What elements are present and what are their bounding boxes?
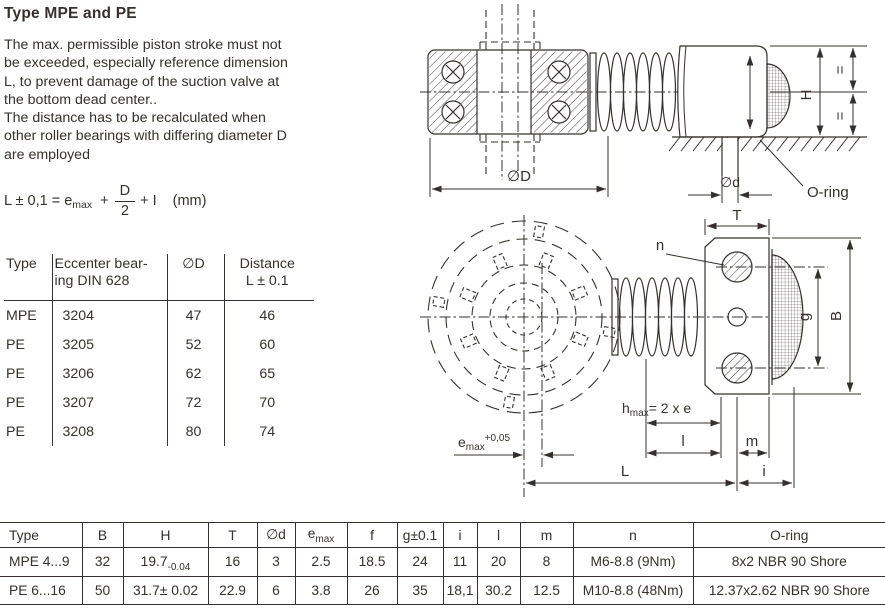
col-header-g: g±0.1 (397, 523, 443, 548)
cell-type: MPE 4...9 (0, 548, 82, 577)
cell-g: 35 (397, 576, 443, 605)
cell-f: 18.5 (347, 548, 397, 577)
cell-f: 26 (347, 576, 397, 605)
formula-unit: (mm) (173, 193, 207, 209)
table-row: PE 6...16 50 31.7± 0.02 22.9 6 3.8 26 35… (0, 576, 885, 605)
cell-l: 20 (477, 548, 520, 577)
cell-m: 8 (520, 548, 573, 577)
intro-line: L, to prevent damage of the suction valv… (4, 73, 288, 91)
dim-label-hmax: hmax= 2 x e (622, 400, 691, 419)
col-header-type: Type (4, 254, 52, 301)
dim-label-diaD: ∅D (507, 168, 531, 185)
cell-type: PE 6...16 (0, 576, 82, 605)
col-header-B: B (82, 523, 123, 548)
cell-n: M10-8.8 (48Nm) (573, 576, 693, 605)
ground-hatch (669, 137, 860, 151)
cell-type: PE (4, 359, 52, 388)
cell-diaD: 52 (167, 330, 224, 359)
cell-bearing: 3207 (52, 388, 167, 417)
cell-diaD: 80 (167, 417, 224, 446)
intro-line: other roller bearings with differing dia… (4, 127, 288, 145)
table-row: PE 3206 62 65 (4, 359, 314, 388)
col-header-i: i (443, 523, 477, 548)
dim-label-eq-bottom: = (832, 111, 849, 120)
upper-drawing: ∅D ∅d H = = O-ring (420, 0, 885, 210)
intro-line: The distance has to be recalculated when (4, 109, 288, 127)
lower-dimensions (454, 219, 861, 491)
formula-plus: + (100, 193, 108, 209)
cell-oring: 8x2 NBR 90 Shore (693, 548, 885, 577)
bolt-top (722, 252, 752, 282)
flange (705, 238, 803, 394)
intro-line: The max. permissible piston stroke must … (4, 36, 288, 54)
dim-label-n: n (656, 237, 664, 254)
col-header-emax: emax (295, 523, 347, 548)
stroke-formula: L ± 0,1 = emax + D 2 + I (mm) (4, 183, 206, 219)
formula-subscript: max (72, 199, 92, 211)
formula-suffix: + I (140, 193, 157, 209)
page-title: Type MPE and PE (4, 5, 137, 23)
formula-prefix: L ± 0,1 = e (4, 193, 72, 209)
dim-label-B: B (828, 311, 845, 321)
table-row: MPE 4...9 32 19.7-0.04 16 3 2.5 18.5 24 … (0, 548, 885, 577)
col-header-H: H (123, 523, 208, 548)
intro-line: are employed (4, 146, 288, 164)
cell-diad: 3 (257, 548, 295, 577)
col-header-m: m (520, 523, 573, 548)
cell-diaD: 72 (167, 388, 224, 417)
bearing-table-header-row: Type Eccenter bear-ing DIN 628 ∅D Distan… (4, 254, 314, 301)
cell-emax: 2.5 (295, 548, 347, 577)
cell-distance: 70 (224, 388, 314, 417)
page: Type MPE and PE The max. permissible pis… (0, 0, 885, 609)
cell-distance: 46 (224, 301, 314, 331)
col-header-n: n (573, 523, 693, 548)
table-row: PE 3207 72 70 (4, 388, 314, 417)
cell-i: 11 (443, 548, 477, 577)
intro-paragraph: The max. permissible piston stroke must … (4, 36, 288, 164)
bolt-bottom (722, 353, 752, 383)
col-header-T: T (208, 523, 257, 548)
formula-numerator: D (115, 183, 135, 202)
cell-bearing: 3205 (52, 330, 167, 359)
dim-label-g: g (796, 313, 813, 321)
dim-label-T: T (732, 207, 741, 224)
intro-line: the bottom dead center.. (4, 91, 288, 109)
cell-distance: 74 (224, 417, 314, 446)
cell-i: 18,1 (443, 576, 477, 605)
cell-bearing: 3206 (52, 359, 167, 388)
cell-m: 12.5 (520, 576, 573, 605)
dim-table-header-row: Type B H T ∅d emax f g±0.1 i l m n O-rin… (0, 523, 885, 548)
cell-H: 19.7-0.04 (123, 548, 208, 577)
bearing-table: Type Eccenter bear-ing DIN 628 ∅D Distan… (4, 254, 314, 446)
dim-label-i: i (762, 463, 765, 480)
cell-distance: 60 (224, 330, 314, 359)
cell-diaD: 47 (167, 301, 224, 331)
dim-label-eq-top: = (832, 65, 849, 74)
col-header-type: Type (0, 523, 82, 548)
oring-leader (760, 140, 803, 186)
cell-type: PE (4, 330, 52, 359)
n-leader (666, 254, 724, 265)
col-header-distance: DistanceL ± 0.1 (224, 254, 314, 301)
cell-bearing: 3208 (52, 417, 167, 446)
dim-label-H: H (798, 90, 815, 101)
dim-label-oring: O-ring (807, 184, 849, 201)
cell-type: PE (4, 388, 52, 417)
table-row: MPE 3204 47 46 (4, 301, 314, 331)
cell-B: 50 (82, 576, 123, 605)
col-header-bearing: Eccenter bear-ing DIN 628 (52, 254, 167, 301)
cell-type: PE (4, 417, 52, 446)
cell-l: 30.2 (477, 576, 520, 605)
formula-denominator: 2 (121, 202, 129, 220)
col-header-oring: O-ring (693, 523, 885, 548)
cell-oring: 12.37x2.62 NBR 90 Shore (693, 576, 885, 605)
table-row: PE 3208 80 74 (4, 417, 314, 446)
dim-label-m: m (746, 433, 759, 450)
cell-diaD: 62 (167, 359, 224, 388)
col-header-f: f (347, 523, 397, 548)
cell-emax: 3.8 (295, 576, 347, 605)
cell-type: MPE (4, 301, 52, 331)
lower-drawing: T n g B hmax= 2 x e emax+0,05 l m L i (420, 205, 885, 505)
cell-distance: 65 (224, 359, 314, 388)
cell-B: 32 (82, 548, 123, 577)
cell-T: 16 (208, 548, 257, 577)
dim-label-L: L (621, 463, 629, 480)
dim-label-emax: emax+0,05 (458, 433, 510, 453)
valve-dome (767, 64, 790, 128)
cell-diad: 6 (257, 576, 295, 605)
formula-fraction: D 2 (115, 183, 135, 219)
cell-bearing: 3204 (52, 301, 167, 331)
table-row: PE 3205 52 60 (4, 330, 314, 359)
col-header-l: l (477, 523, 520, 548)
cell-g: 24 (397, 548, 443, 577)
cell-T: 22.9 (208, 576, 257, 605)
dim-label-diad: ∅d (720, 174, 740, 190)
cell-H: 31.7± 0.02 (123, 576, 208, 605)
dimension-table: Type B H T ∅d emax f g±0.1 i l m n O-rin… (0, 522, 885, 605)
dim-label-l: l (681, 433, 684, 450)
col-header-diad: ∅d (257, 523, 295, 548)
col-header-diaD: ∅D (167, 254, 224, 301)
intro-line: be exceeded, especially reference dimens… (4, 54, 288, 72)
cell-n: M6-8.8 (9Nm) (573, 548, 693, 577)
